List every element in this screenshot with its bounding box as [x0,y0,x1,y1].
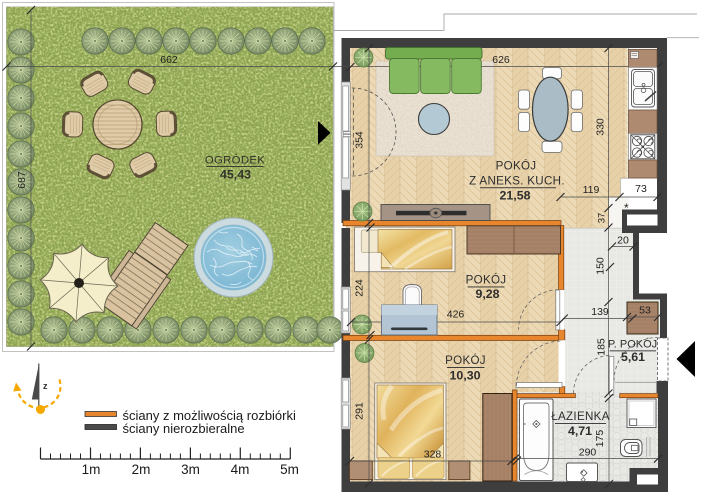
svg-text:5m: 5m [280,462,299,477]
svg-text:3m: 3m [181,462,200,477]
svg-text:73: 73 [635,183,647,195]
svg-text:20: 20 [617,235,629,247]
svg-text:9,28: 9,28 [475,287,499,301]
svg-text:53: 53 [639,305,651,317]
svg-text:POKÓJ: POKÓJ [466,274,507,287]
svg-text:5,61: 5,61 [621,350,645,364]
svg-text:POKÓJ: POKÓJ [496,160,537,173]
svg-text:2m: 2m [132,462,151,477]
svg-text:POKÓJ: POKÓJ [445,354,486,367]
svg-text:z: z [43,381,48,391]
svg-text:662: 662 [160,54,178,66]
svg-text:291: 291 [354,402,366,420]
svg-text:687: 687 [16,171,28,189]
svg-text:21,58: 21,58 [499,189,530,203]
svg-text:626: 626 [492,54,510,66]
svg-text:328: 328 [424,449,442,461]
svg-text:45,43: 45,43 [220,168,251,182]
svg-text:354: 354 [354,131,366,149]
svg-text:4,71: 4,71 [568,424,592,438]
svg-text:10,30: 10,30 [449,369,480,383]
svg-text:150: 150 [595,257,607,275]
svg-text:426: 426 [447,309,465,321]
svg-text:290: 290 [579,447,597,459]
svg-text:ŁAZIENKA: ŁAZIENKA [551,410,609,423]
svg-text:37: 37 [597,213,608,224]
svg-text:175: 175 [594,430,606,448]
svg-text:330: 330 [595,118,607,136]
svg-text:4m: 4m [231,462,250,477]
svg-text:P. POKÓJ: P. POKÓJ [608,338,657,351]
svg-text:1m: 1m [82,462,101,477]
svg-text:185: 185 [596,338,608,356]
svg-text:OGRÓDEK: OGRÓDEK [205,154,265,167]
svg-text:Z ANEKS. KUCH.: Z ANEKS. KUCH. [469,175,565,188]
svg-text:119: 119 [583,184,600,196]
svg-text:139: 139 [591,306,609,318]
svg-text:ściany nierozbieralne: ściany nierozbieralne [123,421,245,436]
svg-text:224: 224 [354,279,366,297]
svg-text:*: * [624,201,629,215]
